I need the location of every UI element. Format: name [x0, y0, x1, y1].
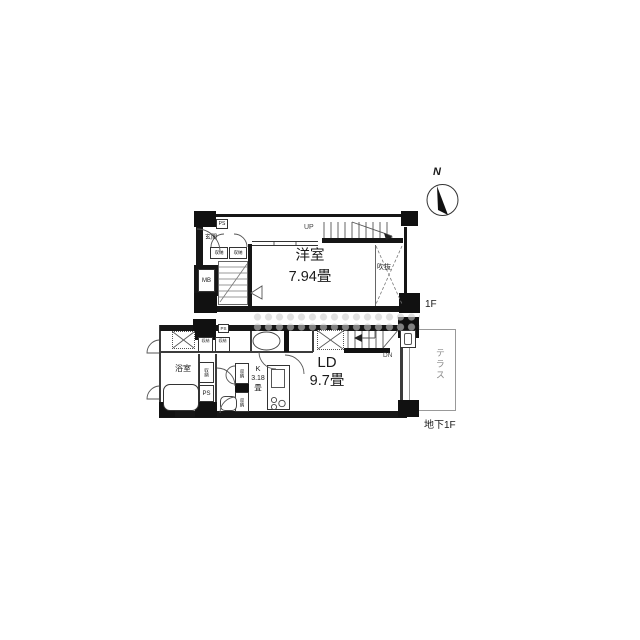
bath-label: 浴室	[166, 365, 200, 374]
washer-cross-icon	[173, 332, 194, 348]
void-cross-icon	[376, 246, 402, 304]
stairs-hall-icon	[219, 264, 247, 302]
floor-b1f-label: 地下1F	[424, 420, 456, 431]
living-dining-size-label: 9.7畳	[292, 374, 362, 390]
entrance-label: 玄関	[205, 235, 217, 242]
floor-1f-label: 1F	[425, 299, 437, 310]
basin-icon	[253, 332, 280, 350]
window-ticks	[274, 241, 296, 246]
floorplan-canvas: N MB PS 収納 収納 玄関 UP 洋室 7.94畳 吹抜 1F テラス 地…	[0, 0, 640, 640]
stairs-down-label: DN	[383, 352, 392, 359]
room-name-label: 洋室	[255, 249, 365, 265]
compass-icon	[427, 185, 458, 216]
kitchen-size-label: 3.18	[247, 375, 269, 383]
stove-burners-icon	[271, 397, 285, 409]
stairs-up-label: UP	[304, 224, 314, 232]
kitchen-label: K	[251, 365, 265, 373]
living-dining-label: LD	[302, 355, 352, 372]
watermark-band	[252, 312, 420, 332]
void-label: 吹抜	[377, 264, 391, 272]
kitchen-unit-label: 畳	[251, 384, 265, 392]
stairs-up-icon	[324, 222, 393, 240]
compass-north-label: N	[433, 166, 441, 178]
door-arcs-b1f	[147, 340, 304, 413]
closet-cross-icon	[318, 331, 343, 349]
terrace-label: テラス	[434, 348, 444, 381]
room-size-label: 7.94畳	[255, 270, 365, 286]
